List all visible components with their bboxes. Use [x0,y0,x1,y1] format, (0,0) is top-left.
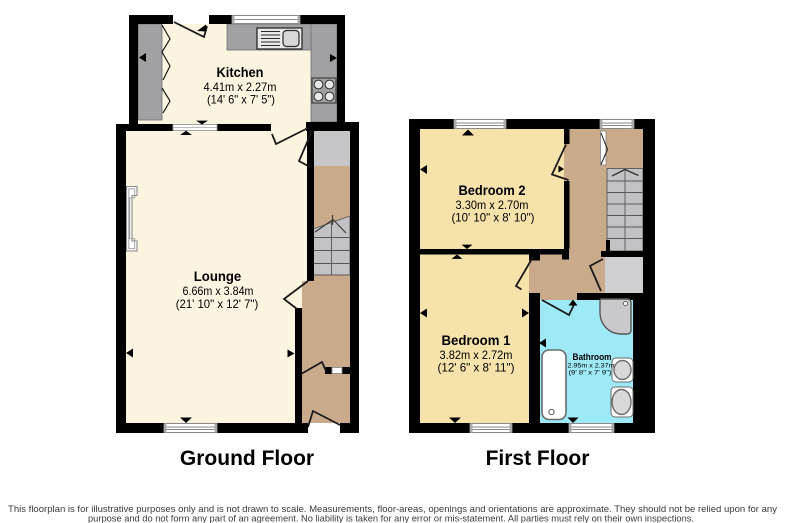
svg-text:Lounge: Lounge [194,268,242,284]
svg-text:2.95m x 2.37m: 2.95m x 2.37m [568,363,615,370]
svg-text:Kitchen: Kitchen [217,64,264,80]
svg-text:purpose and do not form any pa: purpose and do not form any part of an a… [88,514,694,523]
svg-text:First Floor: First Floor [486,447,590,470]
svg-text:Bedroom 1: Bedroom 1 [442,332,511,348]
svg-text:Bathroom: Bathroom [573,352,612,363]
svg-text:(21' 10" x 12' 7"): (21' 10" x 12' 7") [176,297,259,311]
svg-text:This floorplan is for illustra: This floorplan is for illustrative purpo… [8,504,777,514]
svg-text:(9' 8" x 7' 9"): (9' 8" x 7' 9") [569,370,612,377]
svg-text:(12' 6" x 8' 11"): (12' 6" x 8' 11") [438,361,515,375]
svg-text:(10' 10" x 8' 10"): (10' 10" x 8' 10") [452,211,535,225]
svg-text:Ground Floor: Ground Floor [180,447,314,470]
svg-text:(14' 6" x 7' 5"): (14' 6" x 7' 5") [207,93,275,107]
svg-text:6.66m x 3.84m: 6.66m x 3.84m [183,284,254,298]
svg-text:Bedroom 2: Bedroom 2 [459,182,526,198]
